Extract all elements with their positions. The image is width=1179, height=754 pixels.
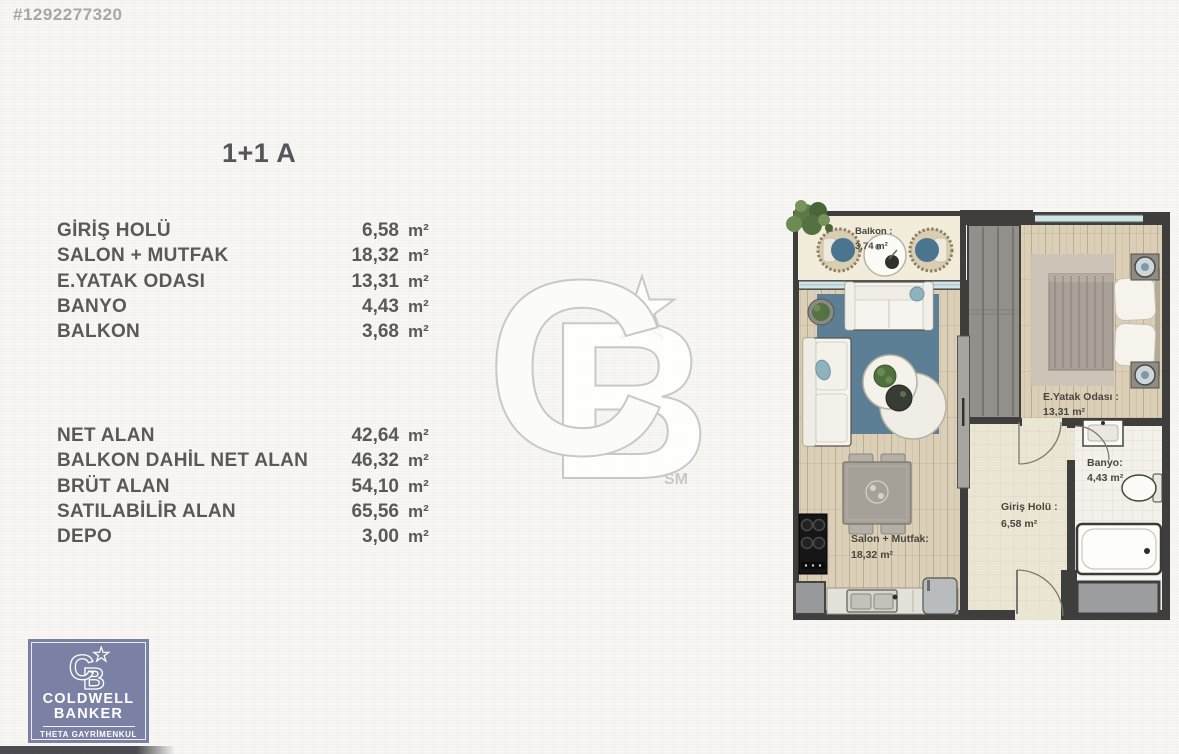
table-row: DEPO 3,00 m² — [57, 524, 449, 549]
watermark-letter-c: C — [492, 258, 667, 498]
summary-value: 42,64 — [335, 423, 399, 448]
bath-area: 4,43 m² — [1087, 472, 1124, 484]
living-label: Salon + Mutfak: — [851, 533, 929, 545]
listing-id: #1292277320 — [13, 5, 123, 25]
table-row: E.YATAK ODASI 13,31 m² — [57, 269, 449, 294]
balcony-label: Balkon : — [855, 226, 892, 237]
table-row: BRÜT ALAN 54,10 m² — [57, 474, 449, 499]
wardrobe — [968, 225, 1020, 418]
rooms-table: GİRİŞ HOLÜ 6,58 m² SALON + MUTFAK 18,32 … — [57, 218, 449, 344]
divider — [43, 726, 135, 727]
hall-area: 6,58 m² — [1001, 518, 1038, 530]
watermark-letter-b: B — [548, 274, 702, 498]
agency-logo: B C COLDWELL BANKER THETA GAYRİMENKUL — [28, 639, 149, 743]
bath-label: Banyo: — [1087, 457, 1123, 469]
dining-table — [843, 454, 911, 534]
room-unit: m² — [399, 243, 449, 268]
summary-unit: m² — [399, 499, 449, 524]
living-area: 18,32 m² — [851, 549, 894, 561]
table-row: BANYO 4,43 m² — [57, 294, 449, 319]
summary-label: BALKON DAHİL NET ALAN — [57, 448, 335, 473]
room-value: 6,58 — [335, 218, 399, 243]
floorplan: Balkon : 3,74 m² Salon + Mutfak: 18,32 m… — [793, 210, 1170, 620]
summary-value: 46,32 — [335, 448, 399, 473]
toilet — [1122, 474, 1162, 502]
room-label: BANYO — [57, 294, 335, 319]
agency-logo-inner: B C COLDWELL BANKER THETA GAYRİMENKUL — [31, 642, 146, 740]
balcony-area: 3,74 m² — [855, 241, 888, 252]
summary-unit: m² — [399, 474, 449, 499]
room-label: SALON + MUTFAK — [57, 243, 335, 268]
room-value: 18,32 — [335, 243, 399, 268]
nightstand — [1131, 254, 1159, 280]
summary-value: 3,00 — [335, 524, 399, 549]
bottom-edge-strip — [0, 746, 175, 754]
star-icon — [610, 276, 675, 338]
room-label: E.YATAK ODASI — [57, 269, 335, 294]
table-row: GİRİŞ HOLÜ 6,58 m² — [57, 218, 449, 243]
room-unit: m² — [399, 319, 449, 344]
nightstand — [1131, 362, 1159, 388]
table-row: SATILABİLİR ALAN 65,56 m² — [57, 499, 449, 524]
agency-sub-brand: THETA GAYRİMENKUL — [40, 730, 137, 739]
summary-label: SATILABİLİR ALAN — [57, 499, 335, 524]
bedroom-door-opening — [1022, 418, 1062, 426]
watermark-sm: SM — [664, 471, 688, 488]
agency-brand-line2: BANKER — [54, 707, 123, 723]
room-label: BALKON — [57, 319, 335, 344]
table-row: SALON + MUTFAK 18,32 m² — [57, 243, 449, 268]
table-row: BALKON 3,68 m² — [57, 319, 449, 344]
balcony-chair — [910, 229, 952, 271]
sofa — [803, 338, 851, 446]
logo-letter-c: C — [68, 648, 93, 687]
fridge — [923, 578, 957, 614]
hall-floor — [968, 422, 1075, 612]
entrance-opening — [1015, 610, 1061, 620]
room-label: GİRİŞ HOLÜ — [57, 218, 335, 243]
summary-unit: m² — [399, 423, 449, 448]
agency-brand-line1: COLDWELL — [43, 692, 135, 708]
room-unit: m² — [399, 218, 449, 243]
hall-label: Giriş Holü : — [1001, 501, 1058, 513]
bedroom-label: E.Yatak Odası : — [1043, 391, 1119, 403]
shaft — [1077, 582, 1159, 614]
bedroom-area: 13,31 m² — [1043, 406, 1086, 418]
sliding-door — [958, 336, 970, 488]
room-value: 13,31 — [335, 269, 399, 294]
coldwell-banker-cb-icon: B C — [60, 646, 118, 692]
table-row: BALKON DAHİL NET ALAN 46,32 m² — [57, 448, 449, 473]
cooktop — [799, 514, 827, 574]
page-title: 1+1 A — [222, 138, 296, 169]
table-row: NET ALAN 42,64 m² — [57, 423, 449, 448]
balcony-chair — [818, 229, 860, 271]
summary-table: NET ALAN 42,64 m² BALKON DAHİL NET ALAN … — [57, 423, 449, 549]
room-value: 3,68 — [335, 319, 399, 344]
room-unit: m² — [399, 269, 449, 294]
plant — [808, 299, 834, 325]
room-value: 4,43 — [335, 294, 399, 319]
room-unit: m² — [399, 294, 449, 319]
window — [1035, 214, 1143, 223]
summary-label: DEPO — [57, 524, 335, 549]
summary-label: NET ALAN — [57, 423, 335, 448]
summary-value: 54,10 — [335, 474, 399, 499]
sofa — [845, 282, 933, 330]
summary-unit: m² — [399, 448, 449, 473]
summary-label: BRÜT ALAN — [57, 474, 335, 499]
coldwell-banker-watermark-icon: B C SM — [492, 258, 702, 498]
star-icon — [93, 647, 108, 661]
bathtub — [1077, 524, 1161, 574]
plant — [786, 200, 833, 235]
summary-value: 65,56 — [335, 499, 399, 524]
bathroom-sink — [1083, 420, 1123, 446]
kitchen-cabinet — [795, 582, 825, 614]
summary-unit: m² — [399, 524, 449, 549]
